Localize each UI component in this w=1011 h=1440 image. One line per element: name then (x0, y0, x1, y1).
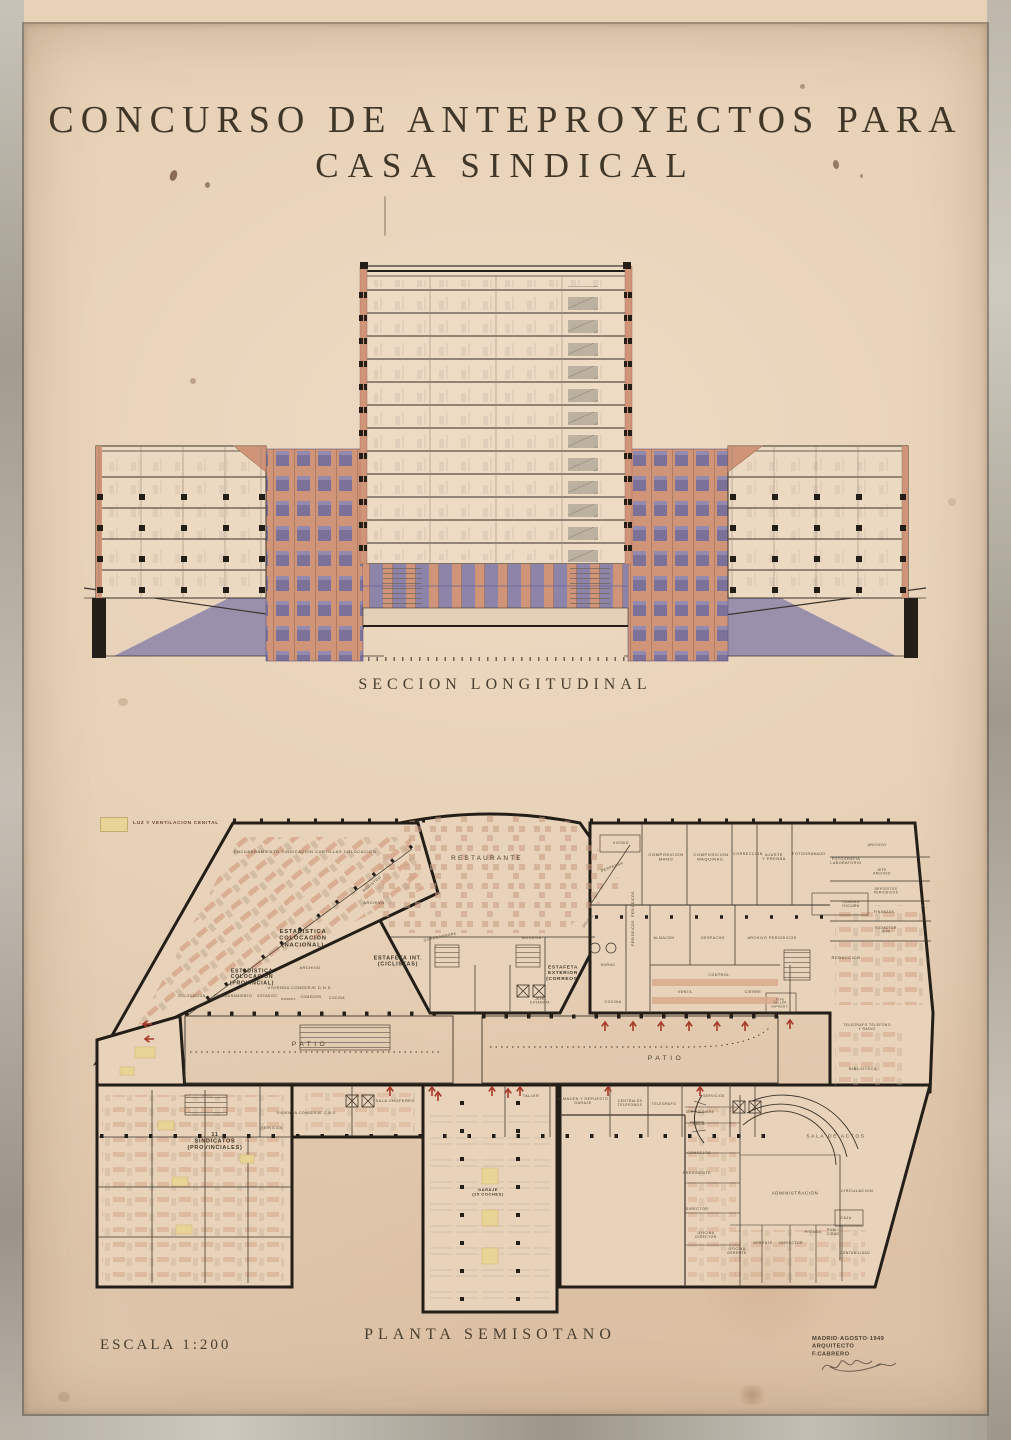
label-servicios-2: SERVICIOS (703, 1094, 724, 1098)
label-finanzas: FINANZAS (874, 910, 894, 914)
label-circulacion: CIRCULACION (841, 1189, 873, 1194)
section-colonnade (363, 564, 628, 626)
label-horno: HORNO (601, 963, 616, 967)
label-archivo-right: ARCHIVO (868, 843, 887, 847)
label-biblioteca: BIBLIOTECA (849, 1067, 877, 1072)
frame-left (0, 0, 24, 1440)
label-contabilidad: CONTABILIDAD (840, 1251, 870, 1255)
label-kiosko: KIOSKO (613, 841, 629, 845)
label-vivienda-conserje-cns: VIVIENDA CONSERJE C.N.S. (277, 1111, 338, 1115)
label-control: CONTROL (708, 973, 729, 977)
label-sala: SALA (693, 1122, 705, 1127)
label-estafeta-interior: ESTAFETA INT. (CICLISTAS) (374, 955, 423, 968)
label-presidente: PRESIDENTE (683, 1171, 711, 1175)
plan-caption: PLANTA SEMISOTANO (364, 1326, 616, 1344)
label-periodicos-1: PERIODICOS (631, 891, 635, 917)
label-depositos-periodicos: DEPOSITOS PERIODICOS (874, 887, 899, 895)
label-cocina-vivienda: COCINA (329, 996, 345, 1000)
label-camara-oscura: CAMARA OSCURA (842, 900, 859, 908)
label-composicion-maquinas: COMPOSICION MAQUINAS. (693, 852, 728, 861)
label-colocacion: COLOCACION (178, 994, 205, 998)
label-redactor-jefe: REDACTOR JEFE (875, 926, 896, 934)
label-consejos: CONSEJOS (687, 1151, 711, 1155)
section-facade-left (266, 449, 363, 661)
label-publicidad: PUBLI CIDAD (827, 1228, 840, 1236)
frame-top (0, 0, 1011, 24)
label-cierre: CIERRE (745, 990, 762, 994)
label-correccion: CORRECCION (733, 852, 763, 856)
label-fotograbado: FOTOGRABADO (792, 852, 825, 856)
label-redaccion: REDACCION (831, 956, 860, 961)
label-encuadramiento: ENCUADRAMIENTO (214, 994, 252, 998)
label-jefe-taller: JEFE TALLER IMPRENT. (771, 998, 789, 1009)
credit-line-1: MADRID·AGOSTO·1949 (812, 1334, 891, 1342)
label-patio-right: PATIO (648, 1054, 684, 1062)
section-right-wing (728, 446, 908, 600)
poster-title-line-1: CONCURSO DE ANTEPROYECTOS PARA (0, 98, 1011, 142)
label-restaurante: RESTAURANTE (451, 854, 523, 862)
label-servidumbre: SERVIDUMBRE (686, 1110, 714, 1114)
legend-label: LUZ Y VENTILACION CENITAL (133, 820, 219, 825)
label-cocina: COCINA (604, 1000, 621, 1004)
label-oficina-gerente: OFICINA GERENTE (727, 1247, 747, 1255)
label-oficina-director: OFICINA DIRECTOR (695, 1231, 716, 1239)
label-almacen: ALMACEN (654, 936, 675, 940)
label-centrales-telefonos: CENTRALES TELEFONOS (618, 1099, 643, 1107)
label-prensa: PRENSA (805, 1230, 822, 1234)
label-patio-left: PATIO (292, 1040, 328, 1048)
label-telegrafo-radio: TELEGRAFO TELEFONO Y RADIO (843, 1023, 891, 1031)
label-telegrafo: TELEGRAFO (652, 1102, 677, 1106)
label-jefe-archivo: JEFE ARCHIVO (873, 868, 891, 876)
label-administracion: ADMINISTRACION (772, 1190, 819, 1195)
label-servicios-1: SERVICIOS (261, 1126, 282, 1130)
label-vivienda-conserje-dns: VIVIENDA CONSERJE D.N.S. (268, 986, 333, 991)
label-gerente: GERENTE (753, 1241, 773, 1245)
section-facade-right (628, 449, 728, 661)
label-caja: CAJA (840, 1216, 851, 1220)
label-despacho: DESPACHO (701, 936, 725, 940)
label-bodega: BODEGA (522, 936, 542, 941)
label-estadistica-nacional: ESTADISTICA COLOCACION (NACIONAL) (279, 928, 326, 948)
label-director: DIRECTOR (686, 1207, 709, 1211)
label-sala-choferes: SALA CHOFERES (376, 1099, 415, 1104)
scale-label: ESCALA 1:200 (100, 1337, 231, 1354)
frame-bottom (0, 1414, 1011, 1440)
label-dormitorio: DORMIT. (281, 997, 296, 1001)
label-archivo-wing: ARCHIVO (363, 901, 384, 906)
label-estadistica-provincial: ESTADISTICA COLOCACION (PROVINCIAL) (230, 968, 274, 986)
label-comedor: COMEDOR (301, 995, 322, 999)
label-archivo-periodicos: ARCHIVO PERIODICOS (747, 936, 796, 940)
label-composicion-mano: COMPOSICION MANO (648, 852, 683, 861)
label-dept-row: ENCUADRAMIENTO SINDICACION CARTILLAS COL… (234, 850, 376, 855)
frame-right (987, 0, 1011, 1440)
label-estafeta-exterior: ESTAFETA EXTERIOR (CORREOS) (546, 965, 580, 982)
legend-skylight-swatch (100, 817, 128, 832)
section-drawing (84, 246, 926, 670)
poster-title-line-2: CASA SINDICAL (0, 146, 1011, 186)
label-almacen-garaje: ALMACEN Y REPUESTO GARAJE (558, 1097, 608, 1105)
label-fotografia-laboratorio: FOTOGRAFIA LABORATORIO (830, 857, 861, 865)
plan-drawing (90, 805, 935, 1315)
label-archivo-estadistica: ARCHIVO (299, 966, 320, 971)
label-sala-de-actos: SALA DE ACTOS (806, 1133, 865, 1139)
label-periodicos-2: PERIODICOS (631, 920, 635, 946)
section-caption: SECCION LONGITUDINAL (358, 676, 651, 694)
label-inspector: INSPECTOR (779, 1241, 803, 1245)
section-tower (359, 262, 632, 564)
label-estadist: ESTADIST. (258, 994, 279, 998)
label-garaje: GARAJE (25 COCHES) (472, 1187, 504, 1196)
architect-signature (818, 1352, 908, 1382)
label-sindicatos: 11 SINDICATOS (PROVINCIALES) (187, 1131, 242, 1150)
label-jefe-estafeta: JEFE ESTAFETA (530, 997, 550, 1005)
section-left-wing (96, 446, 266, 600)
framed-architectural-drawing: CONCURSO DE ANTEPROYECTOS PARA CASA SIND… (0, 0, 1011, 1440)
label-taller: TALLER (523, 1094, 539, 1098)
label-ajuste-prensa: AJUSTE Y PRENSA (762, 852, 786, 861)
label-venta: VENTA (678, 990, 692, 994)
